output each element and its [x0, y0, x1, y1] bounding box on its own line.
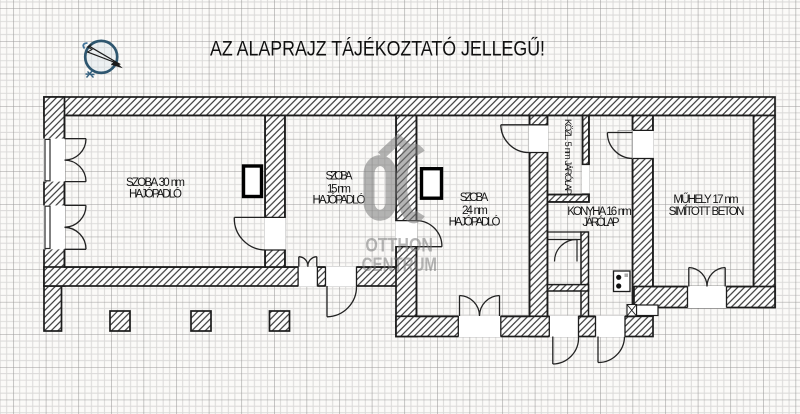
svg-text:SIMÍTOTT BETON: SIMÍTOTT BETON [669, 205, 745, 218]
svg-text:24 nm: 24 nm [462, 205, 488, 217]
svg-text:SZOBA: SZOBA [326, 171, 353, 183]
svg-text:SZOBA 30 nm: SZOBA 30 nm [126, 177, 185, 189]
svg-text:CENTRUM: CENTRUM [362, 254, 437, 276]
svg-text:HAJÓPADLÓ: HAJÓPADLÓ [449, 216, 501, 229]
svg-text:MŰHELY 17 nm: MŰHELY 17 nm [673, 192, 738, 206]
svg-text:HAJÓPADLÓ: HAJÓPADLÓ [313, 194, 366, 207]
svg-text:KÖZL. 5 nm JÁRÓLAP: KÖZL. 5 nm JÁRÓLAP [562, 119, 573, 195]
svg-text:AZ ALAPRAJZ TÁJÉKOZTATÓ JELLEG: AZ ALAPRAJZ TÁJÉKOZTATÓ JELLEGŰ! [210, 36, 545, 61]
svg-text:JÁRÓLAP: JÁRÓLAP [582, 216, 620, 229]
svg-text:SZOBA: SZOBA [460, 192, 489, 204]
svg-text:HAJÓPADLÓ: HAJÓPADLÓ [129, 188, 182, 201]
